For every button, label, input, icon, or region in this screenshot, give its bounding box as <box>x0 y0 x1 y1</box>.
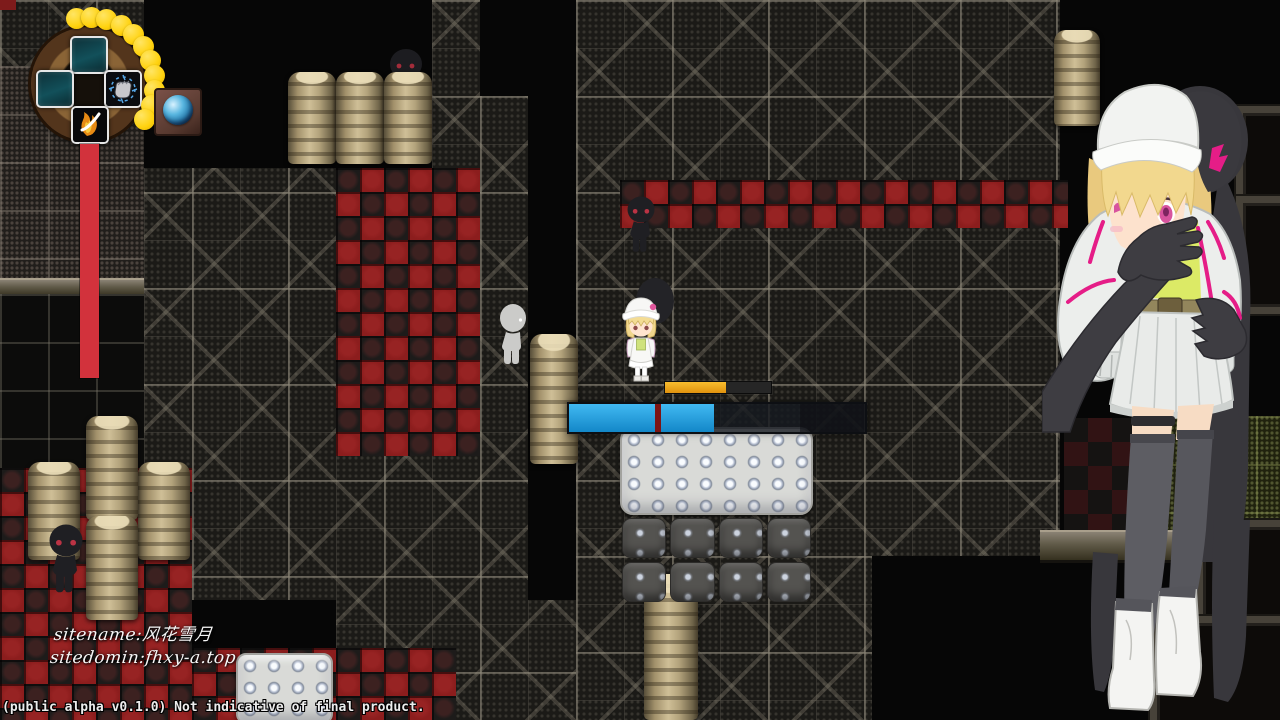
checker-floor-left <box>336 168 480 456</box>
checker-strip <box>620 180 1068 228</box>
boss-hp-divider <box>655 404 661 432</box>
heroine-portrait <box>1042 66 1254 720</box>
skill-wheel <box>31 27 145 141</box>
cast-bar <box>664 381 772 394</box>
barrel <box>86 516 138 620</box>
gray-block-tile <box>719 518 763 558</box>
cast-bar-fill <box>665 382 726 393</box>
studded-white-block <box>620 427 813 515</box>
boss-hp-bar <box>567 402 867 434</box>
hero-girl <box>618 290 664 384</box>
watermark-sitename: sitename:风花雪月 <box>53 620 214 645</box>
checker-corner-bit <box>0 0 16 10</box>
studded-gray-blocks <box>620 516 813 604</box>
gray-block-tile <box>767 562 811 602</box>
barrel <box>138 462 190 560</box>
void-area <box>480 0 576 96</box>
barrel <box>288 72 336 164</box>
orb-pedestal <box>154 88 202 136</box>
barrel <box>384 72 432 164</box>
void-area <box>192 600 336 648</box>
watermark-sitedomain: sitedomin:fhxy-a.top <box>49 648 237 668</box>
barrel <box>530 334 578 464</box>
boss-bar-shade <box>800 404 865 432</box>
gray-block-tile <box>719 562 763 602</box>
gray-block-tile <box>622 562 666 602</box>
shadow-lurker-mid <box>622 196 660 268</box>
gray-block-tile <box>622 518 666 558</box>
gray-block-tile <box>767 518 811 558</box>
shadow-lurker-bottom <box>44 524 88 612</box>
barrel <box>336 72 384 164</box>
boss-hp-fill <box>569 404 714 432</box>
gray-block-tile <box>670 518 714 558</box>
globe-orb-icon <box>163 95 193 125</box>
charge-dots <box>31 27 145 141</box>
barrel <box>86 416 138 520</box>
gray-block-tile <box>670 562 714 602</box>
version-status-text: (public alpha v0.1.0) Not indicative of … <box>2 700 425 715</box>
pale-figure <box>496 302 530 382</box>
health-bar <box>80 144 99 378</box>
game-viewport[interactable]: sitename:风花雪月 sitedomin:fhxy-a.top (publ… <box>0 0 1280 720</box>
